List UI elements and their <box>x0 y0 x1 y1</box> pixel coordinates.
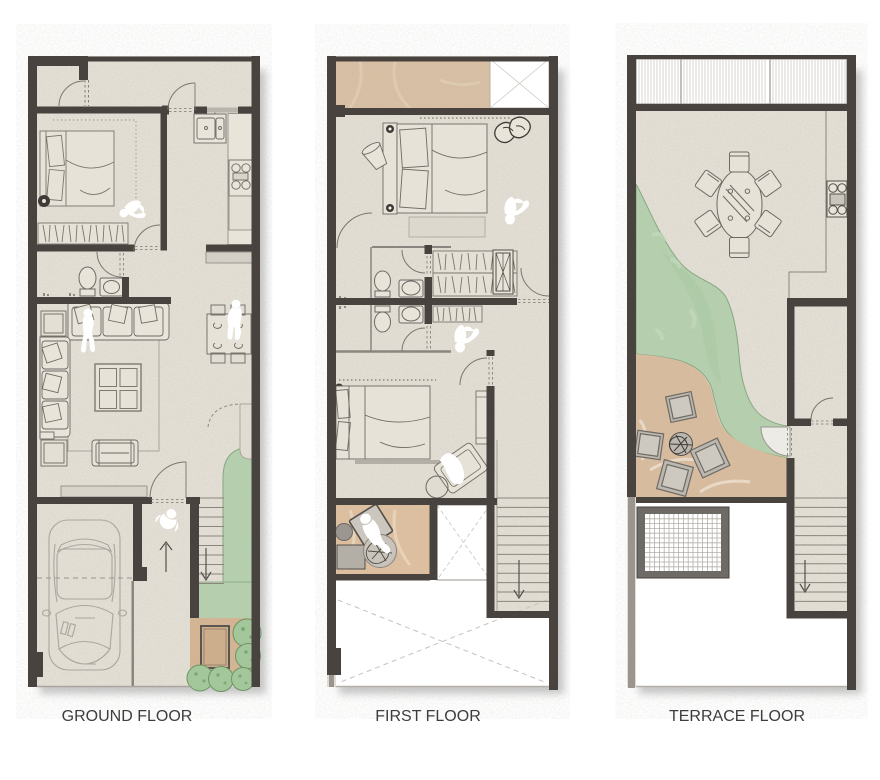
svg-text:GROUND FLOOR: GROUND FLOOR <box>62 708 193 725</box>
svg-text:FIRST FLOOR: FIRST FLOOR <box>375 708 481 725</box>
svg-text:TERRACE FLOOR: TERRACE FLOOR <box>669 708 805 725</box>
